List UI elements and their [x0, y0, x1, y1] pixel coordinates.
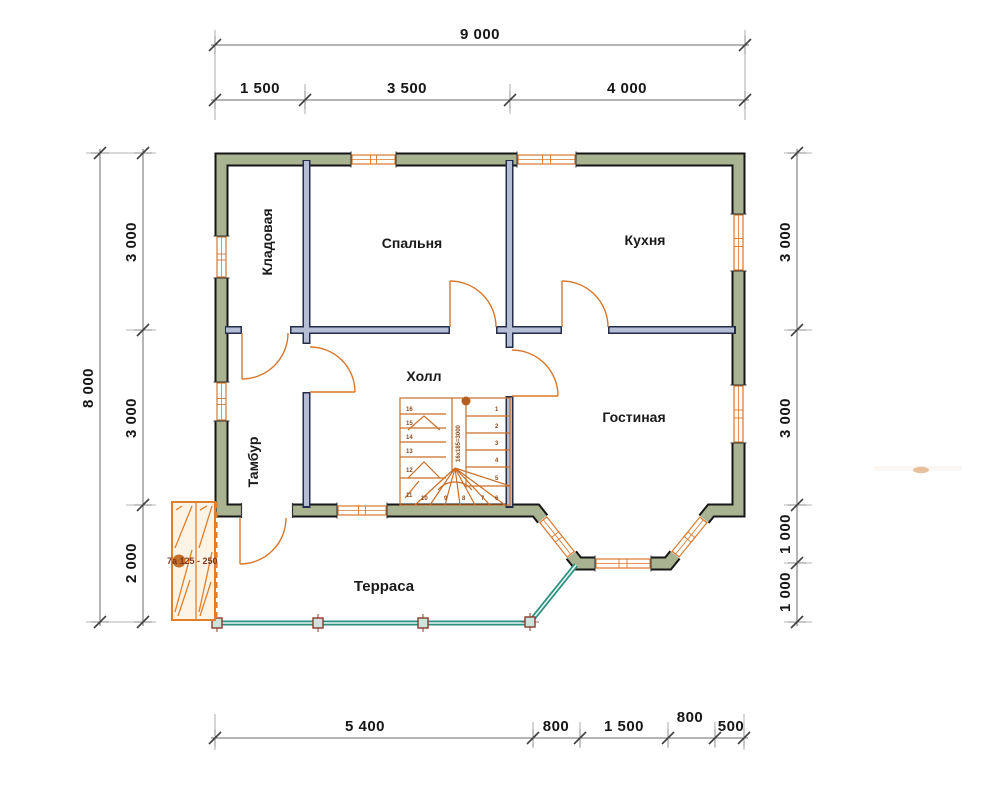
dim-bottom-2: 800 — [543, 718, 570, 735]
stair-num: 12 — [406, 468, 413, 474]
stair-num: 6 — [495, 496, 499, 502]
stair-num: 16 — [406, 407, 413, 413]
stair-num: 2 — [495, 424, 499, 430]
dimension-lines: 9 000 1 500 3 500 4 000 8 000 3 000 3 00… — [80, 26, 806, 747]
stair-num: 14 — [406, 435, 413, 441]
dim-bottom-5: 500 — [718, 718, 745, 735]
entrance-porch: 7а 125 - 250 — [167, 502, 218, 620]
terrace-door-opening — [241, 502, 293, 519]
window — [595, 556, 651, 572]
room-label-vestibule: Тамбур — [245, 437, 261, 488]
door-vestibule — [310, 347, 355, 392]
window — [337, 503, 387, 519]
window — [731, 214, 747, 271]
dim-left-total: 8 000 — [80, 368, 97, 408]
dim-bottom-4: 800 — [677, 709, 704, 726]
floor-plan-drawing: 9 000 1 500 3 500 4 000 8 000 3 000 3 00… — [0, 0, 1000, 794]
interior-walls — [225, 160, 736, 508]
railing-post — [418, 614, 428, 632]
window — [517, 152, 576, 168]
door-storage — [242, 333, 288, 379]
dim-top-total: 9 000 — [460, 26, 500, 43]
stair-num: 4 — [495, 458, 499, 464]
window — [214, 236, 230, 278]
stair-num: 3 — [495, 441, 499, 447]
door-terrace — [240, 518, 286, 564]
dim-right-4: 1 000 — [777, 572, 794, 612]
room-label-hall: Холл — [406, 368, 441, 384]
stair-num: 8 — [462, 496, 466, 502]
exterior-walls — [222, 160, 739, 564]
door-bedroom — [450, 281, 496, 327]
door-kitchen — [562, 281, 608, 327]
dim-right-1: 3 000 — [777, 222, 794, 262]
window — [351, 152, 396, 168]
dim-right-2: 3 000 — [777, 398, 794, 438]
room-label-terrace: Терраса — [354, 578, 415, 595]
dim-bottom-1: 5 400 — [345, 718, 385, 735]
extension-lines — [86, 30, 812, 750]
dim-bottom-3: 1 500 — [604, 718, 644, 735]
stair-num: 1 — [495, 407, 499, 413]
stair-note: 16x185=3000 — [456, 424, 462, 462]
porch-label: 7а 125 - 250 — [167, 556, 218, 566]
stair-num: 15 — [406, 421, 413, 427]
railing-post — [313, 614, 323, 632]
window — [536, 514, 577, 560]
stair-start-dot — [462, 397, 471, 406]
dim-top-1: 1 500 — [240, 80, 280, 97]
dim-left-1: 3 000 — [123, 222, 140, 262]
dim-left-2: 3 000 — [123, 398, 140, 438]
stair-num: 11 — [406, 493, 413, 499]
stair-num: 5 — [495, 476, 499, 482]
window — [669, 514, 710, 560]
room-label-bedroom: Спальня — [382, 235, 442, 251]
room-label-living: Гостиная — [602, 409, 665, 425]
terrace-railing — [212, 565, 576, 632]
window — [214, 382, 230, 421]
floor-plan-page: 9 000 1 500 3 500 4 000 8 000 3 000 3 00… — [0, 0, 1000, 794]
staircase: 16x185=3000 1 2 3 4 5 6 16 15 14 13 12 1… — [400, 397, 510, 506]
stair-num: 13 — [406, 449, 413, 455]
room-label-kitchen: Кухня — [625, 232, 666, 248]
dim-top-3: 4 000 — [607, 80, 647, 97]
door-living — [512, 350, 558, 396]
artifact-smudge — [874, 466, 962, 473]
room-label-storage: Кладовая — [259, 208, 275, 275]
dim-left-3: 2 000 — [123, 543, 140, 583]
window — [731, 385, 747, 443]
stair-num: 10 — [421, 496, 428, 502]
dim-top-2: 3 500 — [387, 80, 427, 97]
dim-right-3: 1 000 — [777, 514, 794, 554]
